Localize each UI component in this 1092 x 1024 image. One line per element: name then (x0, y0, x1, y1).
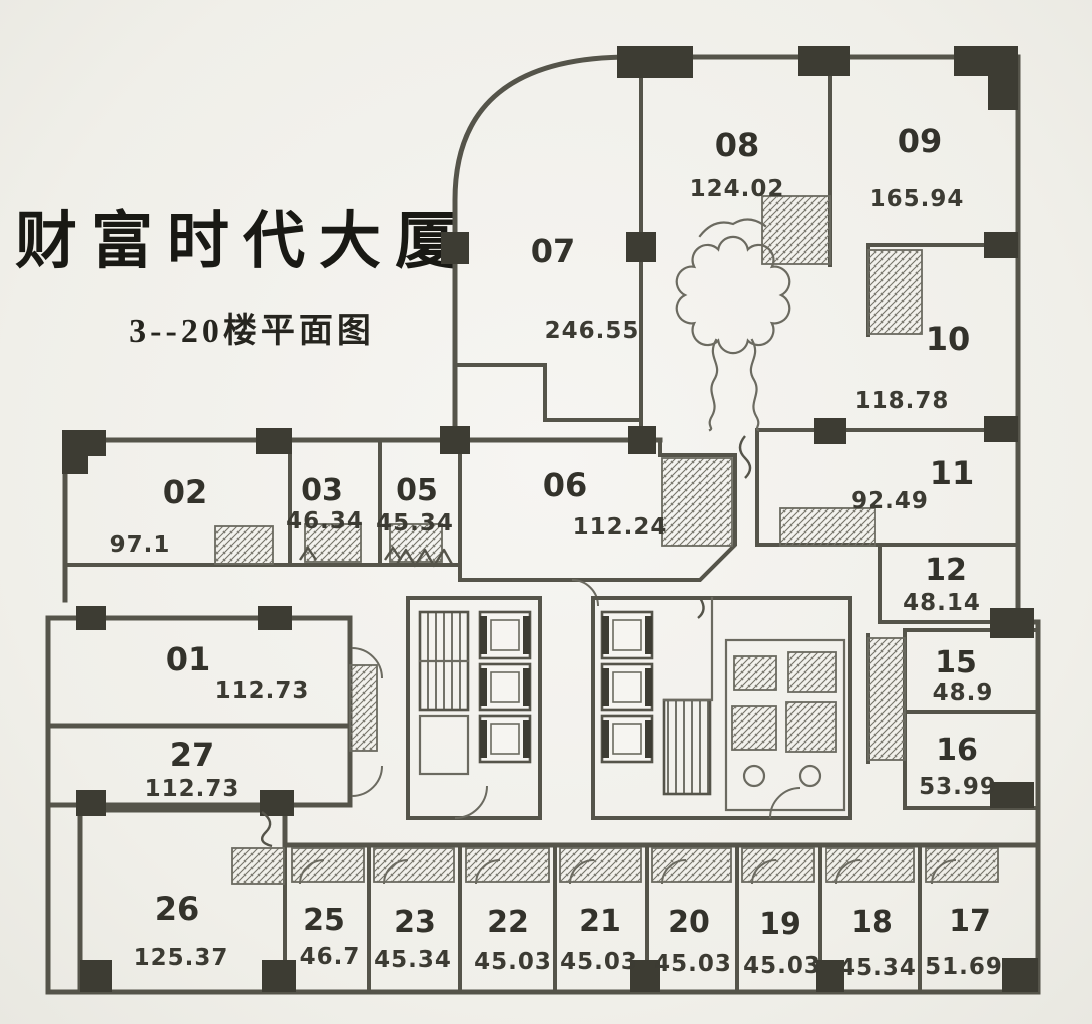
svg-text:45.03: 45.03 (560, 949, 638, 975)
room-19-label: 1945.03 (743, 907, 821, 979)
svg-text:48.9: 48.9 (933, 680, 994, 706)
room-08-label: 08124.02 (690, 126, 785, 202)
elevator (602, 612, 652, 658)
elevator (480, 664, 530, 710)
room-12-label: 1248.14 (903, 553, 981, 616)
core-left (408, 598, 540, 818)
room-18-label: 1845.34 (839, 905, 917, 981)
svg-text:02: 02 (163, 473, 208, 511)
svg-text:97.1: 97.1 (110, 532, 171, 558)
svg-text:125.37: 125.37 (134, 945, 229, 971)
elevator (602, 664, 652, 710)
svg-text:23: 23 (394, 905, 436, 940)
svg-text:25: 25 (303, 903, 345, 938)
svg-text:16: 16 (936, 733, 978, 768)
svg-text:05: 05 (396, 473, 438, 508)
room-25-label: 2546.7 (300, 903, 361, 970)
room-03-label: 0346.34 (286, 473, 364, 534)
svg-text:45.03: 45.03 (743, 953, 821, 979)
room-01-label: 01112.73 (166, 640, 310, 704)
room-15-label: 1548.9 (933, 645, 994, 706)
svg-text:27: 27 (170, 736, 215, 774)
svg-text:51.69: 51.69 (925, 954, 1003, 980)
svg-text:118.78: 118.78 (855, 388, 950, 414)
svg-text:48.14: 48.14 (903, 590, 981, 616)
svg-text:10: 10 (926, 320, 971, 358)
svg-text:20: 20 (668, 905, 710, 940)
floor-range-subtitle: 3--20楼平面图 (129, 312, 375, 350)
svg-text:03: 03 (301, 473, 343, 508)
room-26-label: 26125.37 (134, 890, 229, 971)
svg-text:26: 26 (155, 890, 200, 928)
svg-text:53.99: 53.99 (919, 774, 997, 800)
room-20-label: 2045.03 (654, 905, 732, 977)
svg-text:92.49: 92.49 (851, 488, 929, 514)
svg-text:11: 11 (930, 454, 975, 492)
svg-text:112.73: 112.73 (215, 678, 310, 704)
svg-text:17: 17 (949, 904, 991, 939)
svg-text:18: 18 (851, 905, 893, 940)
elevator (480, 716, 530, 762)
building-title: 财富时代大厦 (15, 207, 471, 276)
svg-text:46.7: 46.7 (300, 944, 361, 970)
svg-text:01: 01 (166, 640, 211, 678)
elevator (480, 612, 530, 658)
svg-text:45.03: 45.03 (654, 951, 732, 977)
core-right (593, 598, 850, 818)
elevator (602, 716, 652, 762)
svg-text:15: 15 (935, 645, 977, 680)
svg-text:45.34: 45.34 (374, 947, 452, 973)
room-02-label: 0297.1 (110, 473, 208, 558)
room-21-label: 2145.03 (560, 904, 638, 975)
svg-text:12: 12 (925, 553, 967, 588)
svg-text:08: 08 (715, 126, 760, 164)
svg-text:45.03: 45.03 (474, 949, 552, 975)
svg-text:165.94: 165.94 (870, 186, 965, 212)
room-05-label: 0545.34 (376, 473, 454, 536)
floor-plan-page: 财富时代大厦 3--20楼平面图 (0, 0, 1092, 1024)
svg-text:246.55: 246.55 (545, 318, 640, 344)
room-06-label: 06112.24 (543, 466, 668, 540)
svg-text:45.34: 45.34 (376, 510, 454, 536)
svg-text:46.34: 46.34 (286, 508, 364, 534)
bathroom-fixtures (215, 196, 998, 884)
svg-text:124.02: 124.02 (690, 176, 785, 202)
svg-text:112.73: 112.73 (145, 776, 240, 802)
svg-text:06: 06 (543, 466, 588, 504)
svg-text:22: 22 (487, 905, 529, 940)
svg-text:21: 21 (579, 904, 621, 939)
room-07-label: 07246.55 (531, 232, 640, 344)
room-27-label: 27112.73 (145, 736, 240, 802)
room-11-label: 1192.49 (851, 454, 974, 514)
room-17-label: 1751.69 (925, 904, 1003, 980)
room-09-label: 09165.94 (870, 122, 965, 212)
svg-text:09: 09 (898, 122, 943, 160)
floor-plan-drawing: 财富时代大厦 3--20楼平面图 (0, 0, 1092, 1024)
svg-text:19: 19 (759, 907, 801, 942)
svg-text:07: 07 (531, 232, 576, 270)
svg-text:45.34: 45.34 (839, 955, 917, 981)
room-16-label: 1653.99 (919, 733, 997, 800)
room-23-label: 2345.34 (374, 905, 452, 973)
room-22-label: 2245.03 (474, 905, 552, 975)
stairs-right (664, 700, 710, 794)
svg-text:112.24: 112.24 (573, 514, 668, 540)
